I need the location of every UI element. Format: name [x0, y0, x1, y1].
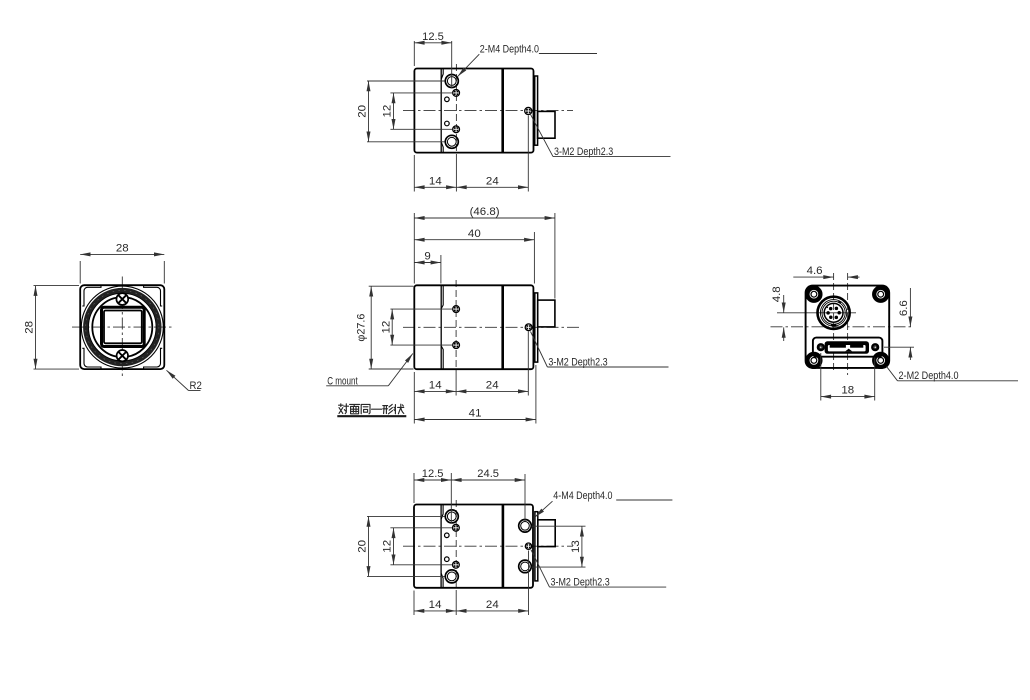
svg-text:3-M2 Depth2.3: 3-M2 Depth2.3 [554, 146, 613, 158]
svg-text:3-M2 Depth2.3: 3-M2 Depth2.3 [551, 576, 610, 588]
svg-text:4-M4 Depth4.0: 4-M4 Depth4.0 [553, 490, 612, 502]
svg-text:2-M2 Depth4.0: 2-M2 Depth4.0 [899, 370, 959, 382]
svg-text:R2: R2 [190, 380, 202, 392]
svg-text:9: 9 [424, 251, 430, 263]
svg-text:24.5: 24.5 [477, 468, 499, 480]
svg-text:12: 12 [380, 321, 392, 334]
svg-text:20: 20 [357, 105, 369, 118]
svg-text:12.5: 12.5 [422, 468, 444, 480]
svg-text:φ27.6: φ27.6 [356, 314, 368, 342]
svg-text:28: 28 [116, 243, 129, 255]
svg-text:3-M2 Depth2.3: 3-M2 Depth2.3 [548, 357, 607, 369]
svg-text:28: 28 [24, 321, 36, 334]
svg-text:4.6: 4.6 [807, 265, 823, 277]
svg-text:12: 12 [382, 540, 394, 553]
svg-text:18: 18 [841, 385, 854, 397]
svg-text:13: 13 [570, 540, 582, 553]
svg-text:14: 14 [429, 380, 442, 392]
svg-text:24: 24 [486, 175, 499, 187]
svg-text:6.6: 6.6 [898, 300, 910, 316]
svg-text:C mount: C mount [327, 375, 358, 387]
svg-text:12.5: 12.5 [422, 31, 444, 43]
svg-text:12: 12 [382, 105, 394, 118]
svg-text:40: 40 [468, 228, 481, 240]
svg-text:41: 41 [469, 408, 482, 420]
svg-text:20: 20 [357, 540, 369, 553]
svg-text:2-M4 Depth4.0: 2-M4 Depth4.0 [480, 43, 539, 55]
svg-text:14: 14 [429, 175, 442, 187]
svg-text:4.8: 4.8 [771, 286, 783, 302]
svg-text:24: 24 [486, 599, 499, 611]
svg-text:24: 24 [486, 380, 499, 392]
svg-text:(46.8): (46.8) [470, 206, 500, 218]
svg-text:14: 14 [429, 599, 442, 611]
